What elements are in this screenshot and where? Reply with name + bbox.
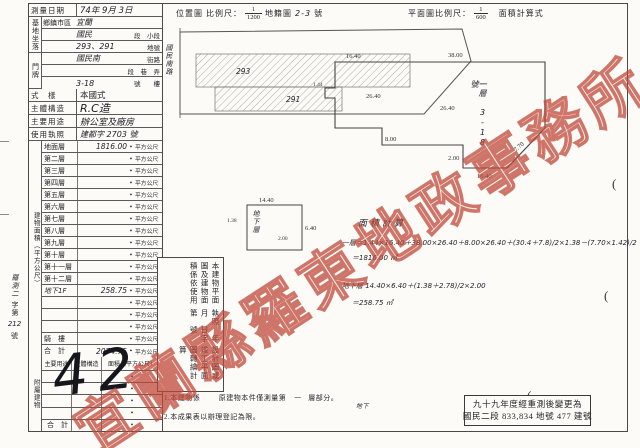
basement-dim-inner: 2.00 [278,236,288,242]
road-name-label: 國民南路 [165,44,172,104]
building-number-handwritten: 42 [48,335,147,411]
dim-step-8: 8.00 [385,136,396,143]
dim-bottom: 16.40 [477,173,492,180]
basement-dim-left: 1.38 [227,218,237,224]
basement-dim-right: 6.40 [305,225,316,232]
resurvey-change-stamp-box: 九十九年度經重測後變更為 國民二段 833,834 地號 477 建號 [464,395,591,426]
basement-dim-top: 14.40 [259,197,274,204]
dim-diagonal: 7.70 [513,141,526,154]
dim-step-2: 2.00 [448,155,459,162]
dim-height-mid: 26.40 [440,105,455,112]
dim-top-left: 16.40 [346,53,361,60]
dim-notch: 1.44 [313,82,323,88]
plan-inner-label: 一層 3-18號 [470,80,486,152]
location-map-drawing: 293 291 [180,28,471,118]
resurvey-line-2: 國民二段 833,834 地號 477 建號 [463,411,592,423]
basement-plan-drawing: 14.40 6.40 1.38 2.00 [227,197,316,250]
parcel-number-2: 291 [286,95,300,104]
dim-top-right: 38.00 [448,52,463,59]
resurvey-line-1: 九十九年度經重測後變更為 [473,399,582,411]
basement-inner-label: 地下層 [252,210,259,248]
parcel-number-1: 293 [236,67,251,76]
dim-height-left: 26.40 [366,93,381,100]
scanned-survey-form: 宜蘭縣羅東地政事務所 羅測二 字第 212 號 測量日期 74年 9月 3日 基… [0,0,640,448]
